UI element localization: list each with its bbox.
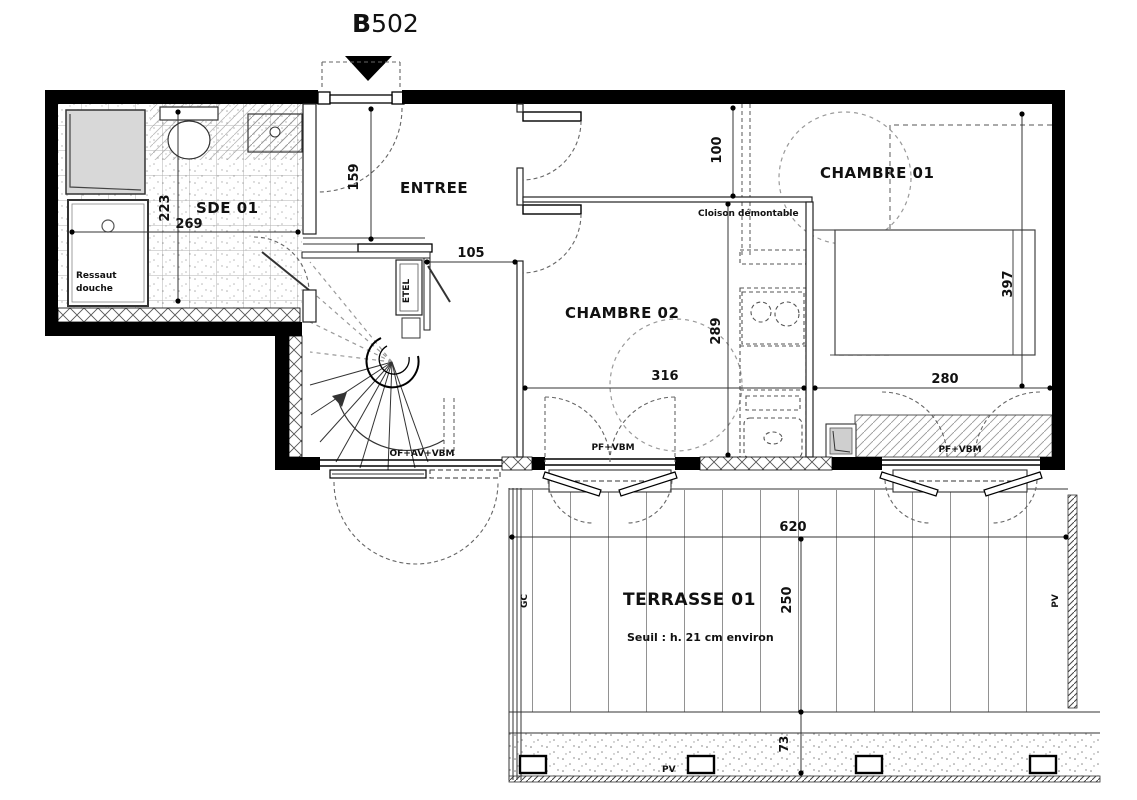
unit-title: B502 <box>345 9 419 81</box>
dim-planter-depth: 73 <box>777 736 791 753</box>
chambre02-label: CHAMBRE 02 <box>565 304 679 322</box>
sde-room: SDE 01 Ressaut douche <box>58 104 302 308</box>
dim-chambre02-height: 289 <box>709 317 724 344</box>
terrasse-label: TERRASSE 01 <box>623 590 756 610</box>
gc-label: GC <box>520 594 530 608</box>
dim-chambre01-width: 280 <box>931 372 958 387</box>
terrasse-threshold-note: Seuil : h. 21 cm environ <box>627 631 774 644</box>
door-passage <box>523 112 581 180</box>
dim-terrasse-width: 620 <box>779 520 806 535</box>
floor-plan-drawing: B502 TERRASSE 01 Seuil : h. 21 cm enviro… <box>0 0 1137 800</box>
privacy-screen <box>1068 495 1077 708</box>
kitchen-sink <box>744 418 802 458</box>
window-chambre02-label: PF+VBM <box>591 443 634 453</box>
ressaut-label-1: Ressaut <box>76 271 117 281</box>
window-stair-label: OF+AV+VBM <box>390 449 455 459</box>
entree-label: ENTREE <box>400 179 468 197</box>
kitchen-hob <box>742 292 804 344</box>
ressaut-label-2: douche <box>76 284 113 294</box>
wc-cistern <box>160 107 218 120</box>
dim-entree-height: 159 <box>347 163 362 190</box>
dim-sde-width: 269 <box>175 217 202 232</box>
dim-chambre01-height: 397 <box>1001 270 1016 297</box>
stair-treads-upper <box>310 262 392 362</box>
planter-strip <box>509 733 1100 776</box>
dim-corridor: 105 <box>457 246 484 261</box>
etel-label: ETEL <box>402 279 412 303</box>
chambre01-label: CHAMBRE 01 <box>820 164 934 182</box>
faucet-icon <box>270 127 280 137</box>
sde-label: SDE 01 <box>196 199 259 217</box>
pv-screen-label: PV <box>1051 594 1061 608</box>
wc-bowl <box>168 121 210 159</box>
dim-chambre02-width: 316 <box>651 369 678 384</box>
chambre02: CHAMBRE 02 <box>523 104 806 462</box>
entrance-pointer-icon <box>345 56 392 81</box>
door-chambre02 <box>523 205 581 273</box>
pv-post-label: PV <box>662 765 676 775</box>
shower-tray <box>66 110 145 194</box>
stair-door-leaf <box>428 266 450 302</box>
cloison-label: Cloison démontable <box>698 208 799 219</box>
unit-number-label: B502 <box>352 9 419 38</box>
window-chambre01-label: PF+VBM <box>938 445 981 455</box>
window-stair: OF+AV+VBM <box>320 449 502 564</box>
sliding-door <box>303 238 432 252</box>
kitchen-unit <box>740 250 806 462</box>
dim-terrasse-depth: 250 <box>780 586 795 613</box>
terrace-outer-edge <box>509 776 1100 782</box>
duct-box <box>402 318 420 338</box>
floorplan-page: B502 TERRASSE 01 Seuil : h. 21 cm enviro… <box>0 0 1137 800</box>
window-stair-swing <box>334 482 498 564</box>
spiral-staircase: ETEL <box>302 252 454 470</box>
drain-icon <box>102 220 114 232</box>
stair-direction-arrow <box>338 400 444 450</box>
cloison-demontable-wall <box>523 197 812 202</box>
dim-passage: 100 <box>710 136 725 163</box>
dim-sde-height: 223 <box>158 194 173 221</box>
